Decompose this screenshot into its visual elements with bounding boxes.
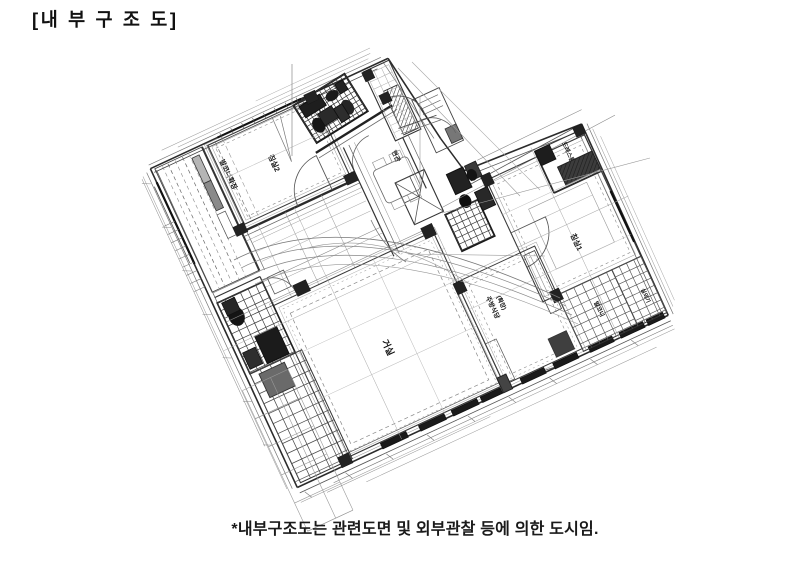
svg-text:침실2: 침실2 (266, 153, 283, 174)
svg-text:거실: 거실 (380, 338, 397, 358)
svg-text:발코니: 발코니 (592, 300, 606, 318)
svg-text:침실1: 침실1 (569, 232, 586, 253)
